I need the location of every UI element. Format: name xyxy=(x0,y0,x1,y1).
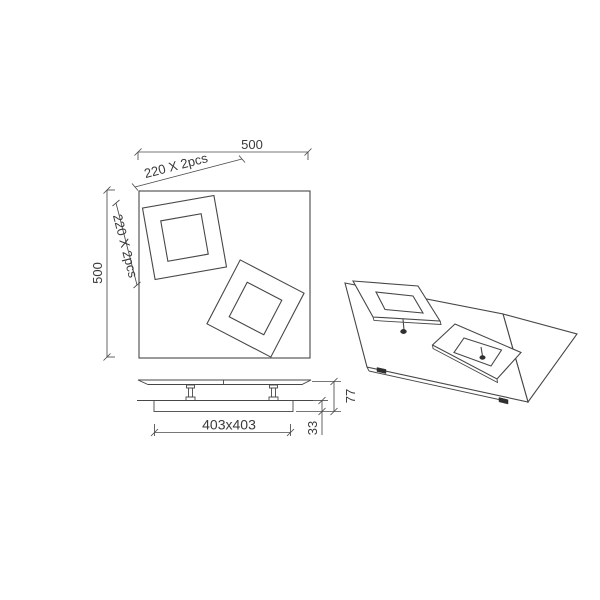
drawing-canvas: 500 220 X 2pcs 500 220 X 2pcs xyxy=(0,0,600,600)
glass-holder-right xyxy=(499,398,508,405)
dim-label-height: 500 xyxy=(90,262,105,284)
dim-width-top: 500 xyxy=(135,137,312,160)
dim-frame-top: 220 X 2pcs xyxy=(132,150,245,190)
dim-height-left: 500 xyxy=(90,187,115,361)
light-frame-2-outer xyxy=(207,260,304,357)
dim-label-total-height: 77 xyxy=(343,389,358,403)
glass-panel-profile xyxy=(138,380,311,385)
perspective-view xyxy=(345,281,577,404)
side-view: 403x403 77 33 xyxy=(137,378,358,436)
dim-label-panel-thickness: 33 xyxy=(305,421,320,435)
frame-2-screw xyxy=(480,356,486,360)
light-frame-2 xyxy=(207,260,304,357)
frame-1-screw xyxy=(401,329,407,333)
dim-panel-thickness: 33 xyxy=(305,397,328,435)
dim-label-frame-left: 220 X 2pcs xyxy=(110,213,141,280)
base-box-profile xyxy=(154,401,293,412)
dim-base-size: 403x403 xyxy=(151,417,294,437)
light-frame-1-outer xyxy=(143,196,227,280)
light-frame-1-inner xyxy=(161,214,208,261)
light-frame-2-inner xyxy=(229,282,282,335)
light-frame-1 xyxy=(143,196,227,280)
dim-label-width: 500 xyxy=(241,137,263,152)
technical-drawing: 500 220 X 2pcs 500 220 X 2pcs xyxy=(0,0,600,600)
standoff-post-right xyxy=(269,385,278,401)
dim-label-base-size: 403x403 xyxy=(202,417,256,433)
dim-frame-left: 220 X 2pcs xyxy=(110,200,141,288)
dim-total-height: 77 xyxy=(296,378,358,415)
standoff-post-left xyxy=(186,385,195,401)
front-view: 500 220 X 2pcs 500 220 X 2pcs xyxy=(90,137,312,361)
